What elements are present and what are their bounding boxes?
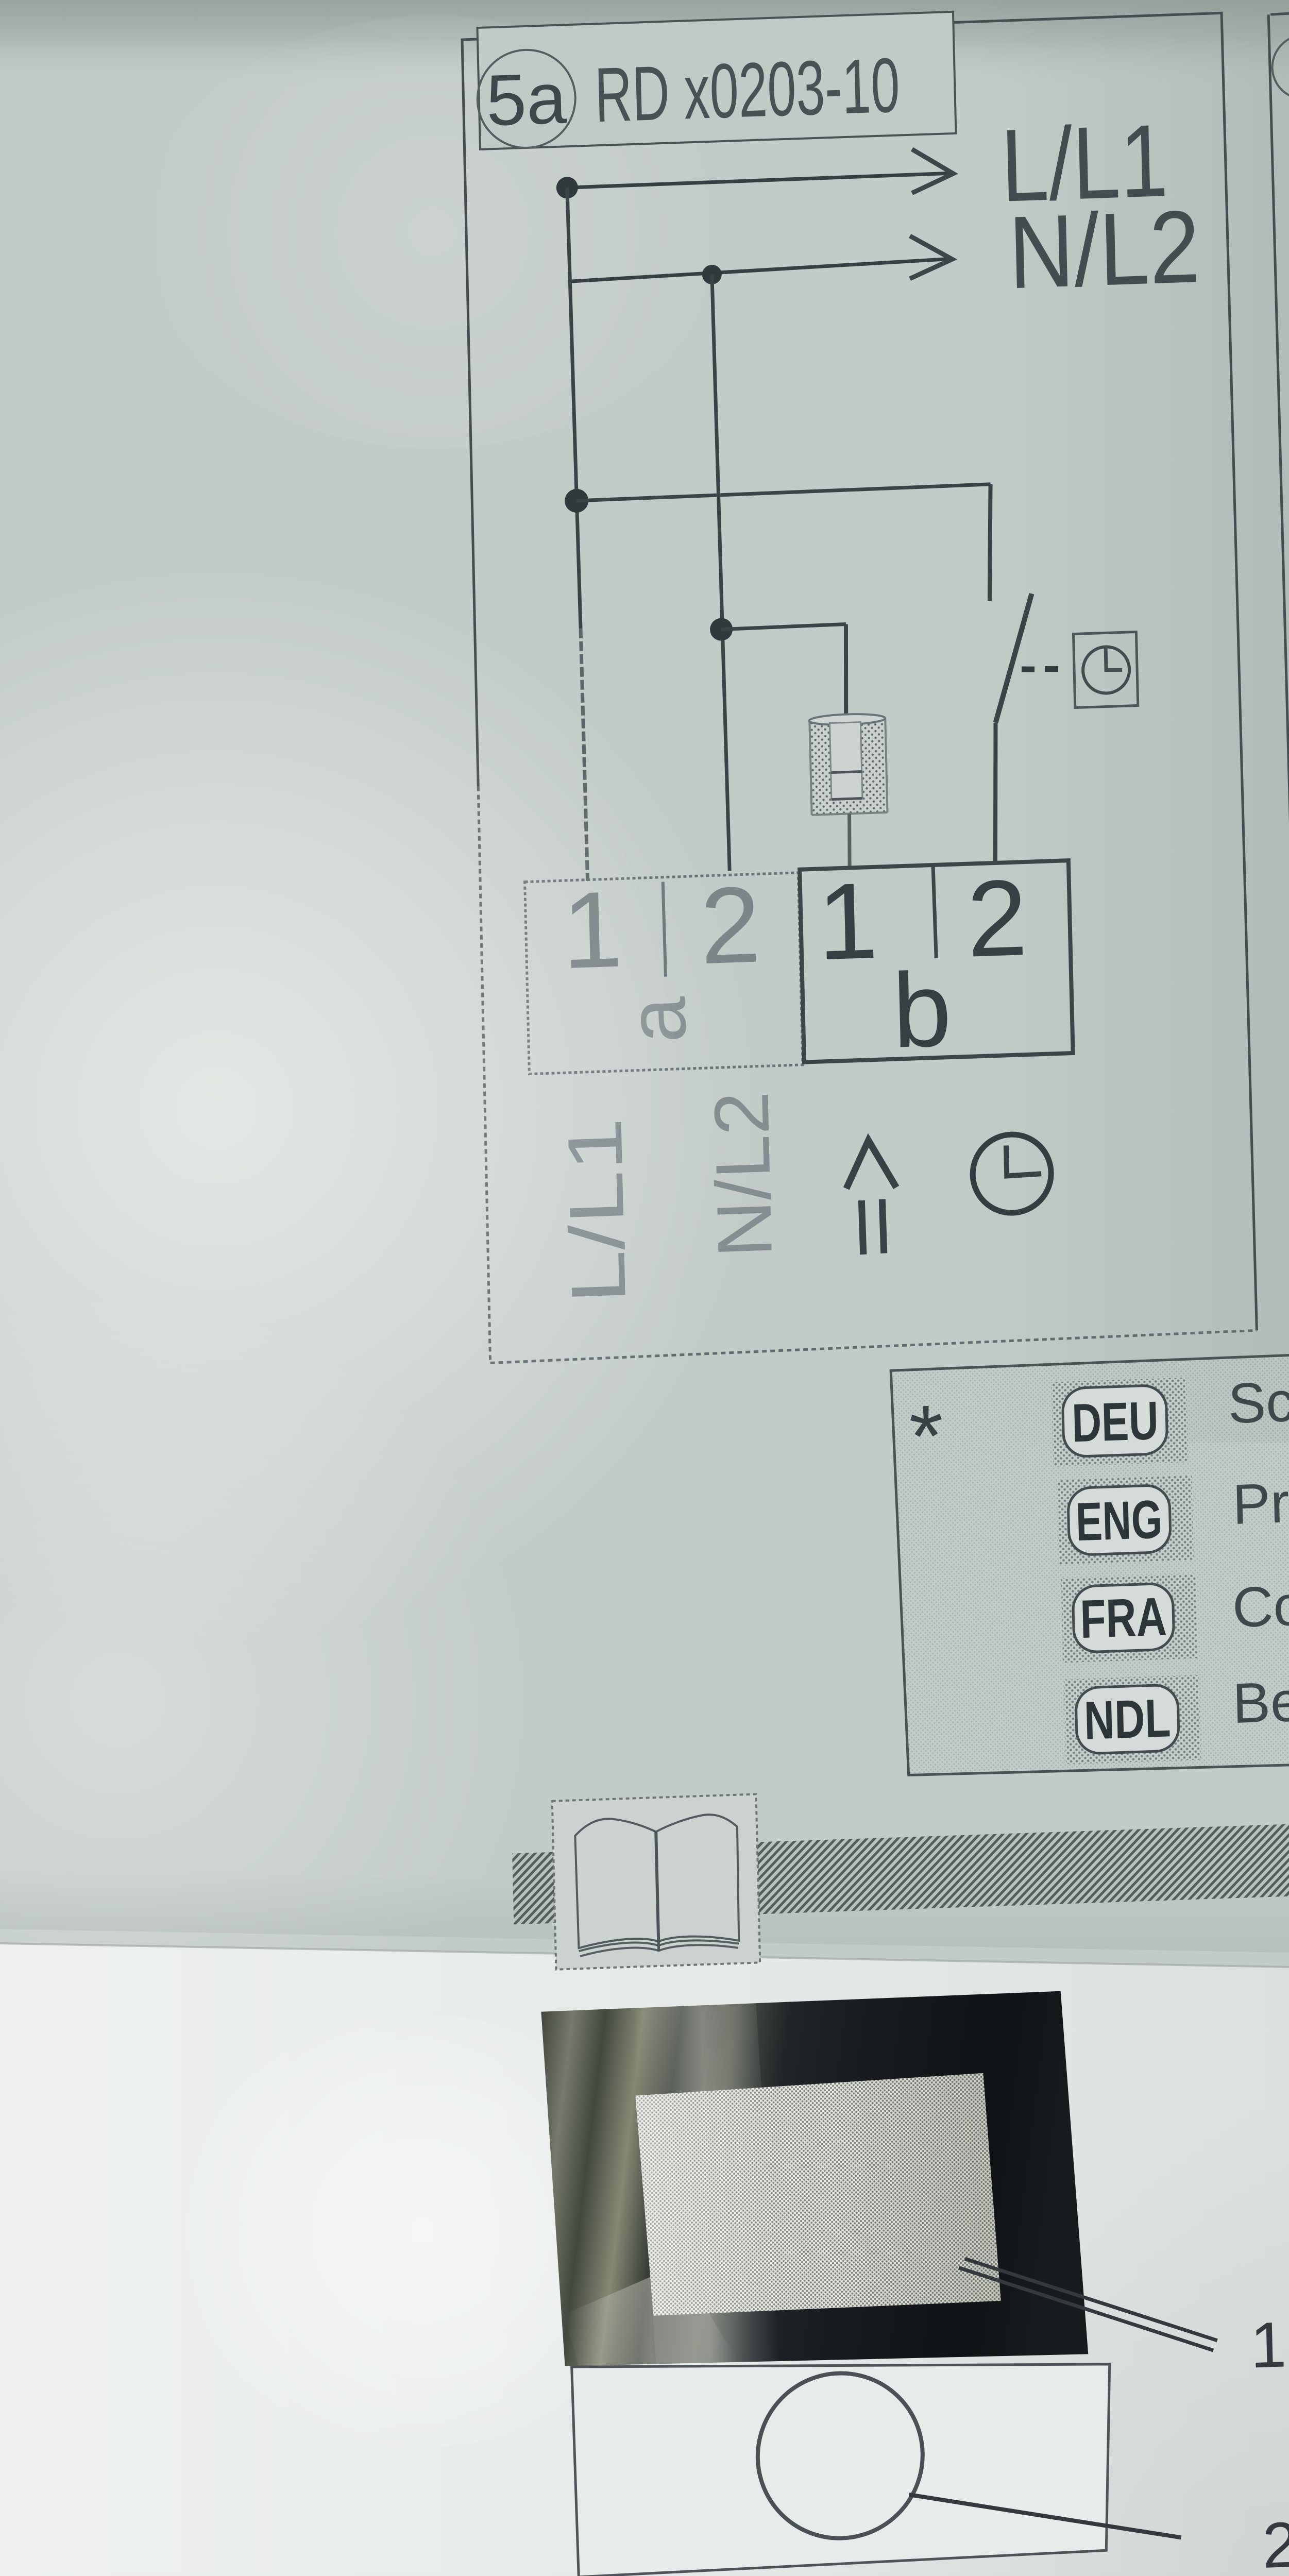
svg-text:Scha: Scha bbox=[1227, 1368, 1289, 1435]
svg-text:2: 2 bbox=[1262, 2509, 1289, 2576]
svg-text:N/L2: N/L2 bbox=[698, 1090, 788, 1259]
svg-text:b: b bbox=[891, 950, 953, 1070]
svg-text:2: 2 bbox=[965, 857, 1028, 980]
svg-text:N/L2: N/L2 bbox=[1007, 189, 1201, 310]
svg-text:1: 1 bbox=[816, 860, 879, 983]
svg-text:5a: 5a bbox=[485, 57, 567, 141]
svg-text:ENG: ENG bbox=[1075, 1489, 1163, 1553]
svg-text:Bedi: Bedi bbox=[1232, 1668, 1289, 1735]
svg-text:DEU: DEU bbox=[1071, 1391, 1159, 1454]
svg-text:2: 2 bbox=[699, 864, 762, 987]
svg-text:Con: Con bbox=[1232, 1572, 1289, 1639]
svg-text:FRA: FRA bbox=[1079, 1586, 1167, 1650]
svg-text:RD x0203-10: RD x0203-10 bbox=[594, 41, 901, 138]
svg-text:Prog: Prog bbox=[1232, 1469, 1289, 1536]
svg-text:NDL: NDL bbox=[1083, 1688, 1172, 1751]
svg-text:*: * bbox=[908, 1387, 945, 1486]
svg-text:1: 1 bbox=[1250, 2309, 1287, 2381]
